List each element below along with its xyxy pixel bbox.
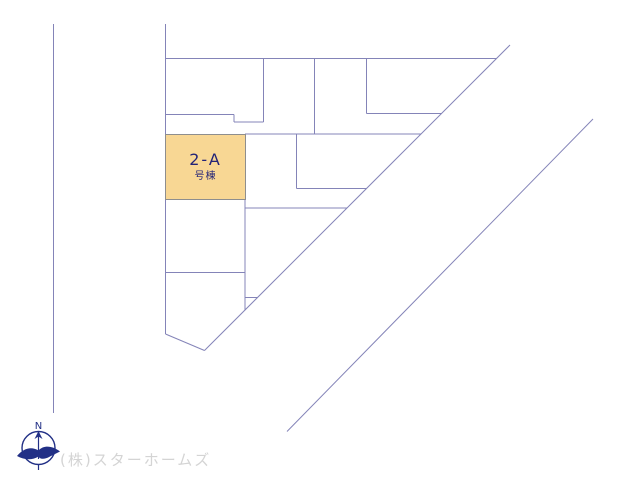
plan-line-bottom-angled-edge bbox=[166, 334, 205, 351]
lot-2a[interactable]: 2-A 号棟 bbox=[165, 134, 246, 200]
north-compass: N bbox=[14, 418, 64, 476]
lot-2a-sublabel: 号棟 bbox=[195, 171, 217, 183]
site-plan: 2-A 号棟 N (株)スターホームズ bbox=[0, 0, 640, 480]
plan-line-road-diagonal-outer bbox=[287, 119, 593, 432]
company-watermark: (株)スターホームズ bbox=[60, 449, 211, 470]
compass-graphic: N bbox=[14, 418, 64, 476]
site-plan-lines bbox=[0, 0, 640, 480]
plan-line-road-diagonal-inner bbox=[205, 45, 511, 351]
lot-2a-label: 2-A bbox=[189, 151, 222, 169]
compass-north-label: N bbox=[35, 421, 42, 432]
